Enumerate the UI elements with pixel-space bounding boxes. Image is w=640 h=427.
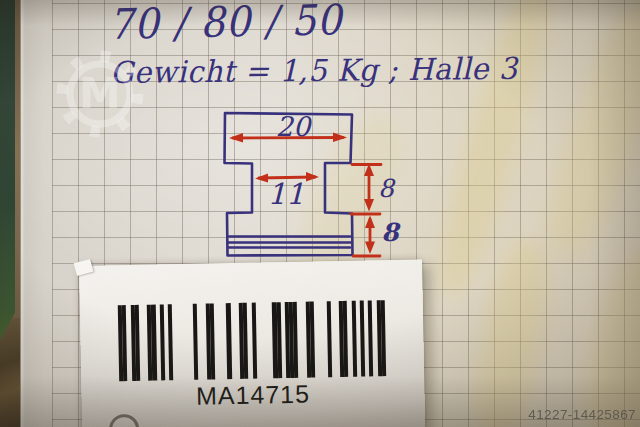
arrowhead-up (365, 216, 375, 229)
barcode-code-text: MA14715 (119, 378, 387, 412)
dim-label-inner-width: 11 (268, 177, 305, 211)
pen-mark (109, 414, 140, 427)
handwritten-size-line: 70 / 80 / 50 (108, 0, 343, 49)
dim-label-upper-height: 8 (378, 174, 396, 203)
arrowhead-down (365, 242, 375, 255)
barcode (118, 300, 386, 381)
arrowhead-left (229, 133, 243, 143)
dim-label-lower-height: 8 (381, 218, 401, 247)
handwritten-weight-line: Gewicht = 1,5 Kg ; Halle 3 (110, 51, 518, 90)
arrowhead-right (333, 133, 347, 143)
dimension-sketch: 20 11 8 8 (200, 95, 415, 270)
sticker-corner-fold (74, 259, 94, 276)
arrowhead-right (306, 172, 319, 182)
watermark-logo-letter: M (79, 69, 121, 118)
barcode-sticker: MA14715 (79, 259, 425, 427)
photo-handwritten-note: 70 / 80 / 50 Gewicht = 1,5 Kg ; Halle 3 … (0, 0, 640, 427)
watermark-gear-icon: M (50, 44, 150, 144)
barcode-bar (381, 300, 387, 376)
sketch-base-lines (228, 237, 351, 248)
listing-id-watermark: 41227-14425867 (528, 407, 636, 422)
table-edge-green (0, 0, 15, 340)
dim-label-top-width: 20 (276, 111, 313, 142)
arrowhead-left (255, 174, 268, 183)
arrowhead-down (364, 199, 374, 212)
